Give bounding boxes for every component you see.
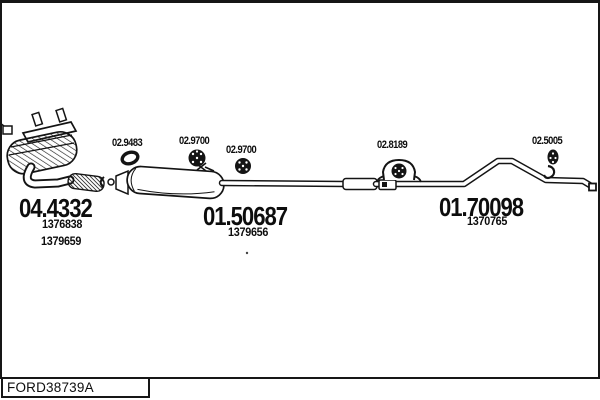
speck (246, 252, 248, 254)
rubber-mount-icon (548, 150, 559, 165)
oe-reference: 1370765 (467, 215, 507, 227)
rubber-mount-icon (235, 158, 251, 174)
tailpipe-end-marker (589, 184, 596, 191)
middle-pipe (222, 183, 346, 184)
rubber-mount-icon (189, 150, 206, 167)
hanger-clamp-icon (377, 160, 421, 182)
drawing-code-box: FORD38739A (1, 377, 150, 398)
part-label: 02.5005 (532, 136, 562, 147)
pipe-sleeve (343, 179, 377, 190)
catalytic-converter (0, 108, 80, 176)
oe-reference: 1379659 (41, 235, 81, 247)
part-label: 02.9700 (226, 145, 256, 156)
drawing-code: FORD38739A (3, 381, 94, 395)
part-label: 02.9483 (112, 138, 142, 149)
part-label: 02.9700 (179, 136, 209, 147)
oe-reference: 1376838 (42, 218, 82, 230)
tail-hanger-hook (544, 166, 554, 178)
part-label: 02.8189 (377, 140, 407, 151)
center-muffler (126, 163, 225, 199)
joint-coupler (101, 171, 128, 194)
exhaust-system-diagram (0, 0, 600, 377)
pipe-clamp (379, 180, 396, 190)
parts-diagram-page: 02.9483 02.9700 02.9700 02.8189 02.5005 … (0, 0, 600, 400)
flex-pipe (67, 173, 105, 192)
gasket-ring-icon (121, 150, 140, 165)
oe-reference: 1379656 (228, 226, 268, 238)
